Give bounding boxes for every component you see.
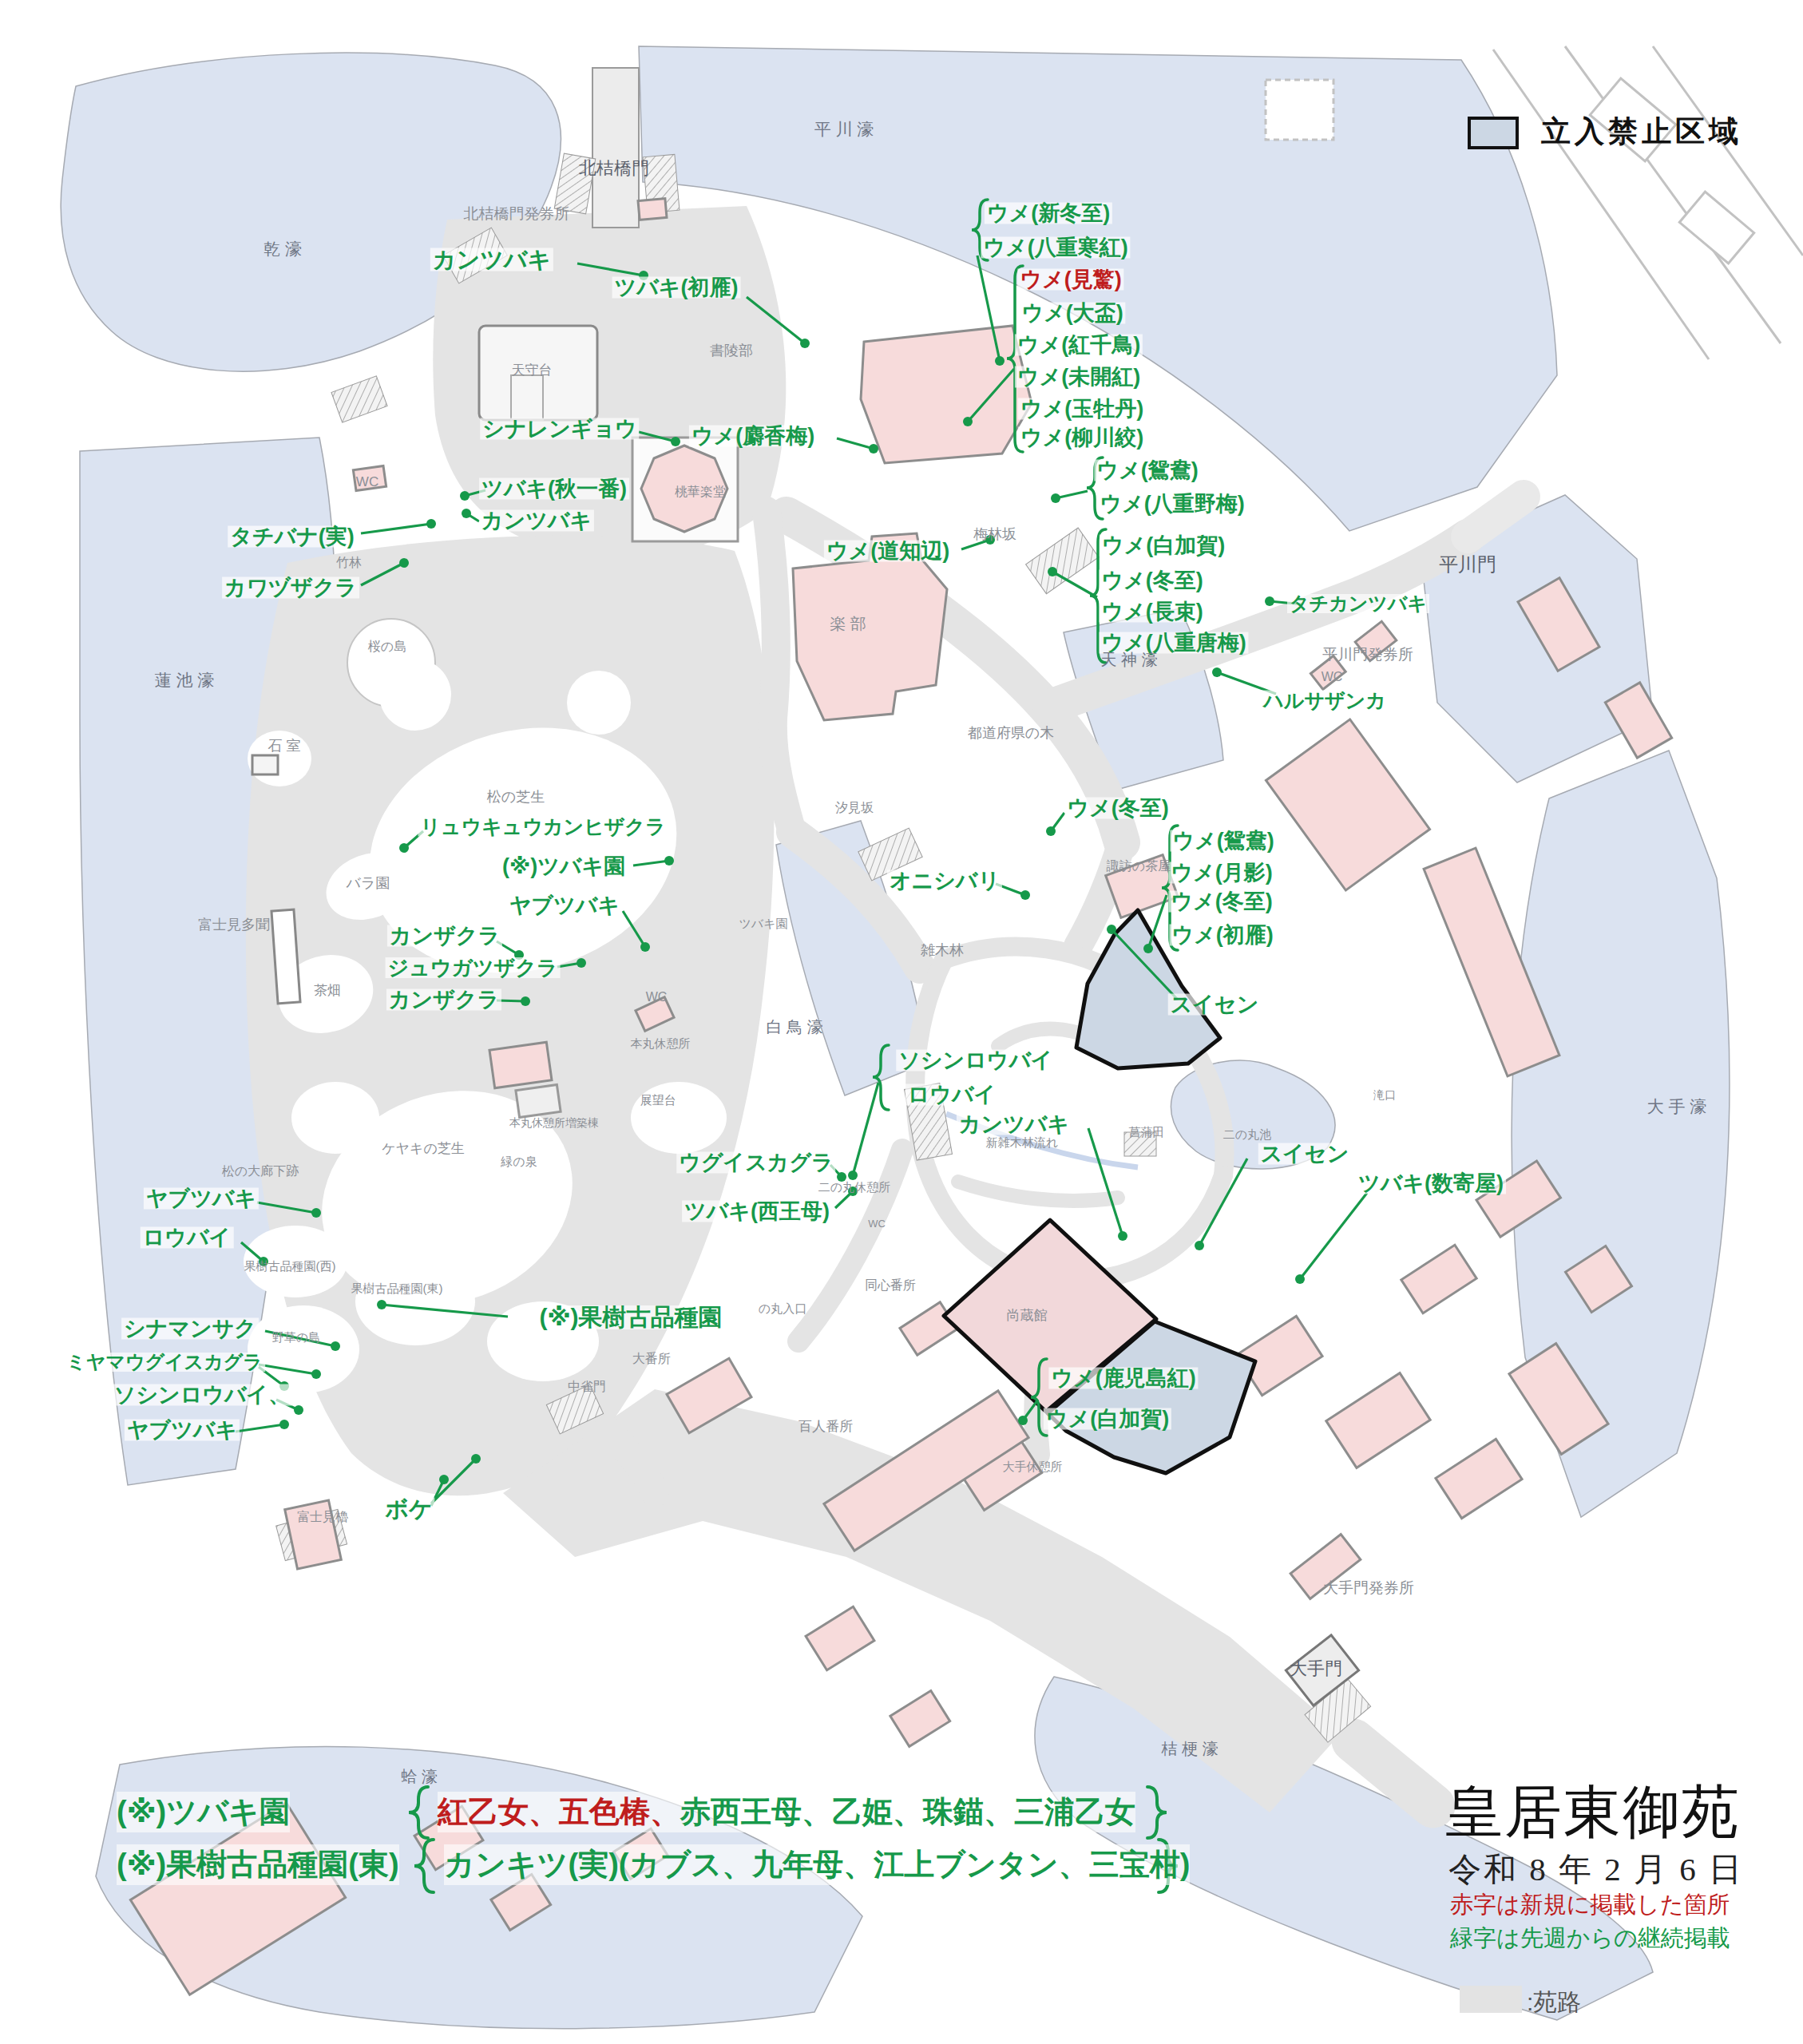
no-entry-label: 立入禁止区域 [1541,112,1742,152]
map-graphics [0,0,1803,2044]
red-note: 赤字は新規に掲載した箇所 [1450,1889,1730,1921]
place-label: 果樹古品種園(西) [244,1260,336,1272]
orchard-list-items: カンキツ(実)(カブス、九年母、江上ブンタン、三宝柑) [444,1844,1190,1885]
place-label: 梅林坂 [973,527,1016,541]
place-label: 乾 濠 [264,240,302,257]
place-label: 富士見櫓 [297,1511,348,1523]
place-label: WC [868,1218,886,1229]
place-label: 諏訪の茶屋 [1107,860,1171,873]
plant-label: ハルサザンカ [1261,691,1389,711]
plant-label: ウメ(八重寒紅) [981,237,1130,259]
place-label: 大 手 濠 [1647,1098,1707,1115]
plant-label: ウメ(白加賀) [1044,1408,1171,1430]
plant-label: カンザクラ [386,989,501,1011]
plant-label: ソシンロウバイ、 [112,1384,292,1406]
plant-label: ツバキ(秋一番) [479,478,629,500]
continuing-species-text: 赤西王母、乙姫、珠錨、三浦乙女 [680,1795,1135,1828]
place-label: 蛤 濠 [401,1769,438,1785]
place-label: 平川門発券所 [1322,647,1413,662]
place-label: 天 神 濠 [1100,652,1157,667]
plant-label: ウメ(大盃) [1019,303,1125,324]
ishimuro [252,755,278,774]
citrus-species-text: カンキツ(実)(カブス、九年母、江上ブンタン、三宝柑) [444,1848,1190,1881]
place-label: 同心番所 [865,1279,916,1292]
no-entry-swatch [1468,117,1519,149]
place-label: 野草の島 [272,1331,320,1343]
plant-label: ウメ(冬至) [1099,570,1205,592]
place-label: ケヤキの芝生 [382,1142,465,1155]
garden-map-canvas: カンツバキツバキ(初雁)ウメ(新冬至)ウメ(八重寒紅)ウメ(見驚)ウメ(大盃)ウ… [0,0,1803,2044]
place-label: 二の丸休憩所 [818,1181,890,1193]
place-label: WC [356,475,378,489]
plant-label: ウメ(鴛鴦) [1094,460,1200,481]
plant-label: ボケ [382,1498,434,1521]
green-note: 緑字は先週からの継続掲載 [1450,1923,1730,1955]
place-label: WC [1322,671,1343,683]
plant-label: (※)果樹古品種園 [537,1305,724,1329]
plant-label: スイセン [1258,1143,1352,1165]
place-label: 本丸休憩所 [631,1037,691,1049]
place-label: 緑の泉 [501,1155,537,1167]
path-legend-label: :苑路 [1527,1987,1581,2019]
place-label: 滝口 [1373,1089,1396,1100]
place-label: 汐見坂 [835,802,874,814]
plant-label: (※)ツバキ園 [500,856,628,877]
tsubaki-garden-list-items: 紅乙女、五色椿、赤西王母、乙姫、珠錨、三浦乙女 [438,1792,1135,1832]
place-label: 北桔橋門 [579,160,649,177]
path-swatch [1460,1986,1522,2013]
place-label: 富士見多聞 [198,917,270,932]
place-label: 北桔橋門発券所 [464,206,570,221]
plant-label: カンザクラ [387,925,502,947]
place-label: の丸入口 [759,1302,806,1314]
plant-label: ヤブツバキ [125,1420,240,1441]
plant-label: ツバキ(初雁) [612,277,741,299]
plant-label: ウメ(玉牡丹) [1018,398,1146,420]
place-label: 楽 部 [830,616,866,632]
plant-label: ミヤマウグイスカグラ [64,1353,265,1372]
place-label: 大手門発券所 [1323,1580,1414,1595]
place-label: 松の芝生 [487,790,545,804]
place-label: 桃華楽堂 [675,485,726,498]
plant-label: ウメ(紅千鳥) [1015,335,1143,356]
plant-label: オニシバリ [887,870,1002,892]
plant-label: カンツバキ [479,510,594,532]
map-date: 令和 8 年 2 月 6 日 [1448,1848,1744,1891]
plant-label: ウメ(冬至) [1064,798,1171,819]
plant-label: ヤブツバキ [144,1188,259,1210]
place-label: 都道府県の木 [968,726,1054,740]
plant-label: カンツバキ [957,1114,1072,1135]
plant-label: ツバキ(数寄屋) [1356,1173,1506,1194]
plant-label: カンツバキ [430,248,553,271]
place-label: 雑木林 [921,943,964,957]
place-label: 平川門 [1439,555,1496,574]
plant-label: ウメ(月影) [1168,862,1274,884]
plant-label: シナマンサク [121,1318,259,1340]
plant-label: リュウキュウカンヒザクラ [418,817,668,837]
place-label: バラ園 [347,876,390,890]
place-label: 茶畑 [314,984,341,997]
tsubaki-garden-list-label: (※)ツバキ園 [117,1792,290,1832]
plant-label: ウメ(鹿児島紅) [1048,1368,1198,1389]
place-label: 果樹古品種園(東) [351,1282,443,1294]
place-label: 尚蔵館 [1007,1309,1048,1322]
new-species-text: 紅乙女、五色椿、 [438,1795,680,1828]
plant-label: ロウバイ [905,1084,999,1106]
plant-label: ウメ(麝香梅) [689,426,817,447]
plant-label: ウメ(見驚) [1017,269,1123,291]
plant-label: ロウバイ [141,1227,234,1249]
place-label: 大手門 [1290,1660,1342,1678]
plant-label: カワヅザクラ [222,577,359,599]
place-label: 中雀門 [568,1380,606,1393]
plant-label: スイセン [1168,994,1262,1016]
place-label: 松の大廊下跡 [222,1165,299,1178]
plant-label: タチバナ(実) [228,526,357,548]
place-label: 大番所 [632,1353,671,1365]
plant-label: ウメ(初雁) [1169,925,1275,946]
plant-label: ウメ(冬至) [1168,891,1274,913]
plant-label: ウメ(新冬至) [985,203,1112,224]
plant-label: ウメ(道知辺) [824,541,952,562]
place-label: 白 鳥 濠 [766,1019,822,1035]
plant-label: ウグイスカグラ [676,1152,835,1174]
plant-label: ウメ(未開紅) [1015,366,1143,388]
place-label: ツバキ園 [739,917,787,929]
plant-label: ヤブツバキ [507,895,622,917]
plant-label: ウメ(八重野梅) [1097,493,1246,515]
plant-label: タチカンツバキ [1287,594,1429,613]
plant-label: ウメ(長束) [1099,601,1205,623]
place-label: 桜の島 [368,640,406,653]
plant-label: シナレンギョウ [480,418,639,440]
place-label: 本丸休憩所増築棟 [509,1117,599,1128]
place-label: 新雑木林流れ [986,1136,1058,1148]
place-label: WC [646,991,668,1004]
place-label: 桔 梗 濠 [1161,1741,1218,1757]
map-title: 皇居東御苑 [1445,1774,1741,1851]
honmaru-resthouse-building [489,1042,552,1088]
place-label: 石 室 [267,739,300,753]
plant-label: ソシンロウバイ [896,1050,1055,1072]
shoryobu-building [861,326,1032,463]
place-label: 二の丸池 [1223,1128,1271,1140]
place-label: 大手休憩所 [1003,1460,1063,1472]
place-label: 展望台 [640,1094,676,1106]
plant-label: ウメ(柳川絞) [1018,427,1146,449]
fujimi-tamon-building [271,909,300,1004]
plant-label: ウメ(鴛鴦) [1170,830,1276,852]
plant-label: ジュウガツザクラ [386,957,561,978]
place-label: 蓮 池 濠 [155,671,215,688]
place-label: 竹林 [336,557,362,569]
place-label: 平 川 濠 [814,121,874,137]
plant-label: ウメ(白加賀) [1100,535,1227,557]
place-label: 菖蒲田 [1129,1126,1165,1138]
place-label: 天守台 [512,363,553,377]
plant-label: ツバキ(西王母) [682,1201,832,1222]
orchard-list-label: (※)果樹古品種園(東) [117,1844,399,1885]
place-label: 百人番所 [798,1420,853,1433]
place-label: 書陵部 [710,343,753,358]
